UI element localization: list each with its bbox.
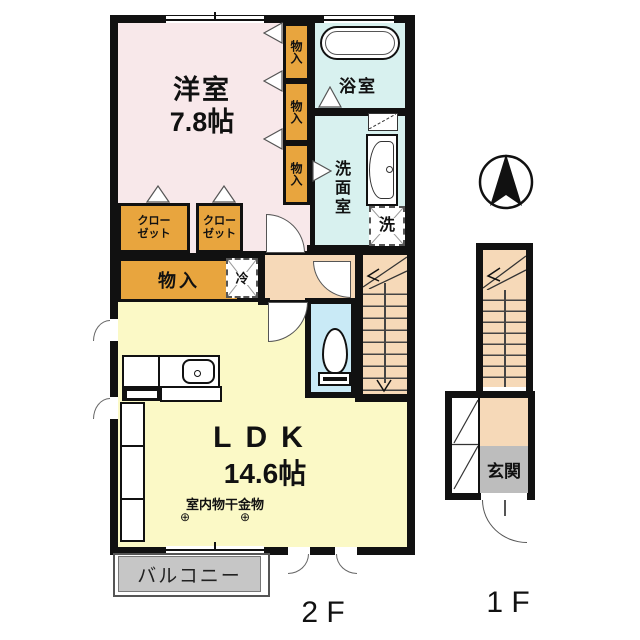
wall-washroom-bottom — [307, 245, 405, 255]
storage-wall-1: 物入 — [283, 23, 310, 81]
toilet-bowl-icon — [322, 328, 348, 374]
washroom-cabinet-diagonal-icon — [369, 114, 396, 129]
balcony-sliding-door-line — [166, 549, 264, 551]
storage-wall-1-label: 物入 — [288, 40, 305, 64]
floor1-label-wrap: 1 F — [465, 584, 551, 622]
ldk-size: 14.6帖 — [224, 452, 307, 492]
closet-1: クロー ゼット — [118, 203, 190, 253]
window-bath-top-line — [324, 19, 394, 21]
washer-label: 洗 — [378, 218, 396, 234]
wall-hall-left — [258, 251, 265, 303]
western-room-size: 7.8帖 — [170, 100, 235, 139]
washroom-label-wrap: 洗面室 — [328, 138, 352, 238]
washer-space: 洗 — [369, 206, 405, 246]
swing-window-left-1-gap — [110, 318, 118, 342]
laundry-hardware-label: 室内物干金物 — [186, 494, 264, 513]
kitchen-cabinet-divider-2 — [121, 498, 144, 500]
kitchen-faucet-icon — [194, 370, 201, 377]
closet-1-door-triangle-icon — [146, 185, 170, 203]
closet-2-line1: クロー — [203, 215, 236, 228]
closet-2-door-triangle-icon — [212, 185, 236, 203]
refrigerator-label: 冷 — [234, 272, 249, 285]
storage-wall-3: 物入 — [283, 143, 310, 205]
entrance-door-leaf — [504, 500, 506, 516]
shoe-storage-diagonal-icon — [452, 398, 478, 493]
swing-window-left-2-arc — [93, 398, 110, 419]
laundry-symbol-2: ⊕ — [240, 510, 250, 524]
kitchen-cabinet-divider-1 — [121, 445, 144, 447]
stairs-2f-bottom-wall — [355, 394, 407, 402]
entrance-label: 玄関 — [487, 457, 521, 482]
kitchen-cabinet-column — [120, 402, 145, 542]
wall-column-right — [310, 23, 315, 245]
stairs-1f-winder-icon — [483, 250, 526, 290]
washroom-cabinet — [368, 113, 398, 131]
storage-room-label: 物入 — [158, 267, 200, 293]
closet-1-line1: クロー — [138, 215, 171, 228]
balcony-area: バルコニー — [118, 556, 261, 592]
storage-door-triangle-1-icon — [263, 22, 283, 44]
stairs-2f-centerline — [384, 283, 386, 383]
stairs-2f-left-wall — [355, 255, 363, 400]
entrance-door-gap — [481, 493, 527, 500]
kitchen-counter-2 — [160, 386, 222, 402]
hall-1f — [480, 398, 528, 446]
bath-door-triangle-icon — [318, 86, 342, 108]
bathroom-label: 浴室 — [339, 72, 377, 97]
stairs-1f-centerline — [504, 290, 506, 389]
refrigerator-space: 冷 — [226, 258, 258, 298]
swing-window-bottom-1-arc — [288, 554, 309, 574]
closet-1-line2: ゼット — [138, 228, 171, 241]
floor2-label-wrap: 2 F — [280, 594, 366, 632]
north-arrow-icon — [477, 150, 535, 214]
ldk-size-wrap: 14.6帖 — [150, 454, 380, 490]
kitchen-counter-divider — [158, 356, 160, 387]
floor1-label: 1 F — [486, 586, 529, 620]
balcony-sliding-door-tick — [214, 542, 216, 549]
closet-2-line2: ゼット — [203, 228, 236, 241]
wall-pink-hall-a — [243, 251, 268, 255]
vanity-faucet-icon — [386, 166, 393, 173]
bathtub-inner-icon — [325, 31, 395, 55]
entrance-area: 玄関 — [480, 446, 528, 493]
laundry-symbol-1: ⊕ — [180, 510, 190, 524]
laundry-hardware-wrap: 室内物干金物 — [158, 494, 292, 512]
stairs-2f-winder-icon — [363, 255, 407, 289]
swing-window-bottom-2-arc — [336, 554, 357, 574]
washroom-door-triangle-icon — [312, 160, 332, 182]
storage-wall-3-label: 物入 — [288, 162, 305, 186]
stairs-2f-down-arrow-icon — [374, 378, 394, 394]
window-western-top-line — [166, 19, 264, 21]
ldk-name: LDK — [213, 421, 317, 455]
window-western-top-tick — [214, 12, 216, 19]
storage-room: 物入 — [118, 258, 240, 302]
balcony-label: バルコニー — [137, 561, 242, 588]
floor-plan-canvas: 物入 物入 物入 クロー ゼット クロー ゼット 物入 冷 — [0, 0, 640, 640]
western-room-size-wrap: 7.8帖 — [118, 102, 286, 136]
floor2-label: 2 F — [301, 596, 344, 630]
storage-wall-2: 物入 — [283, 81, 310, 143]
storage-wall-2-label: 物入 — [288, 100, 305, 124]
toilet-tank-band — [323, 377, 347, 381]
swing-window-left-1-arc — [93, 320, 110, 341]
shoe-storage-1f — [452, 398, 478, 493]
kitchen-black-bar-slit — [127, 391, 157, 398]
closet-2: クロー ゼット — [196, 203, 243, 253]
ldk-name-wrap: LDK — [150, 420, 380, 456]
swing-window-left-2-gap — [110, 396, 118, 420]
